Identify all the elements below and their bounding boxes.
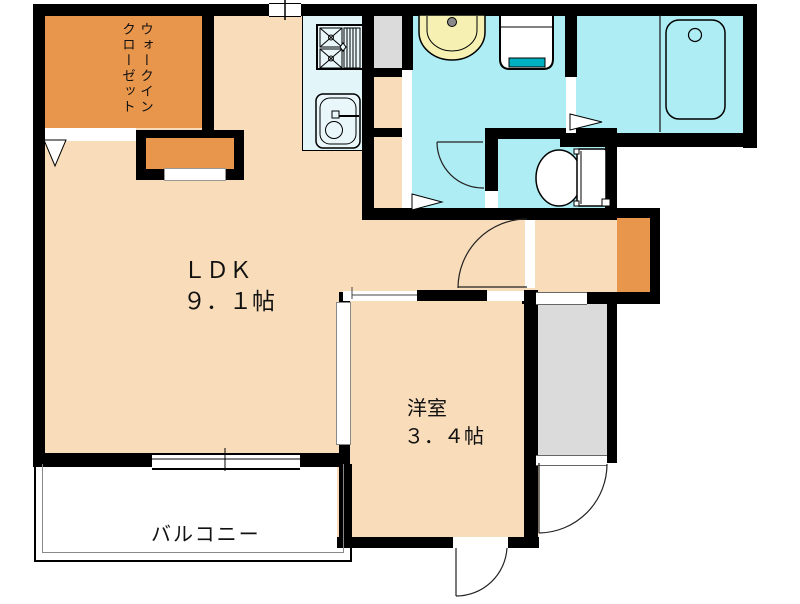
ldk-size: ９．１帖 — [183, 287, 275, 318]
walk-in-closet-label: ウォークイン クローゼット — [118, 22, 154, 134]
stove-icon — [317, 25, 363, 69]
bathroom-entry-triangle — [570, 114, 602, 130]
western-room-size: ３．４帖 — [404, 422, 484, 450]
western-room-name: 洋室 — [404, 394, 484, 422]
western-door-swing — [456, 548, 507, 596]
bathtub-icon — [666, 20, 725, 119]
toilet-icon — [536, 149, 610, 206]
balcony-label: バルコニー — [151, 518, 261, 547]
washroom-entry-triangle — [412, 194, 442, 210]
kitchen-sink-icon — [316, 94, 360, 148]
ldk-label: ＬＤＫ ９．１帖 — [183, 256, 275, 318]
western-room-label: 洋室 ３．４帖 — [404, 394, 484, 450]
entry-door-swing — [539, 463, 607, 533]
hall-door-swing — [458, 219, 527, 288]
floor-plan: ウォークイン クローゼット ＬＤＫ ９．１帖 洋室 ３．４帖 バルコニー — [0, 0, 800, 604]
walk-in-closet-label-line2: クローゼット — [118, 22, 136, 134]
closet-entry-triangle — [44, 140, 66, 166]
washroom-door-swing — [437, 142, 484, 188]
ldk-name: ＬＤＫ — [183, 256, 275, 287]
walk-in-closet-label-line1: ウォークイン — [136, 22, 154, 134]
wash-basin-icon — [419, 15, 485, 60]
washing-machine-icon — [500, 15, 553, 69]
